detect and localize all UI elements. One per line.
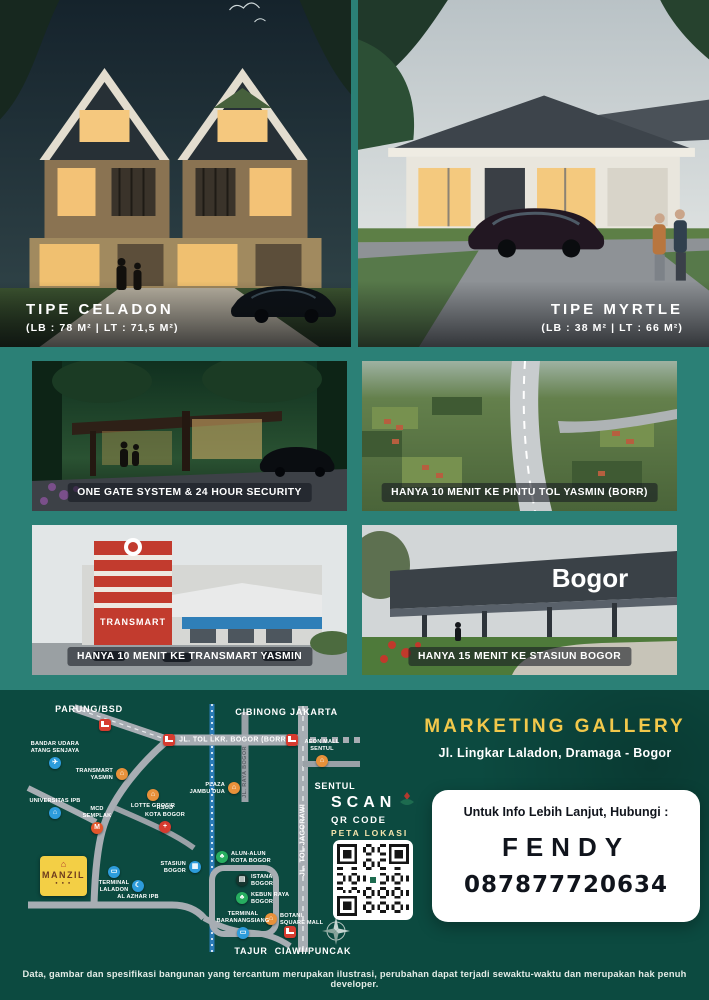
contact-phone: 087877720634 xyxy=(432,872,700,898)
istana-bogor-icon: ▤ xyxy=(236,874,248,886)
plaza-jambu-dua-label: PLAZA JAMBU DUA xyxy=(151,782,225,796)
scan-word: SCAN xyxy=(331,794,396,812)
photo-tol-yasmin: HANYA 10 MENIT KE PINTU TOL YASMIN (BORR… xyxy=(362,361,677,511)
rsud-kota-bogor-icon: + xyxy=(159,821,171,833)
map-area-label: SENTUL xyxy=(315,781,356,791)
plaza-jambu-dua-icon: ⌂ xyxy=(228,782,240,794)
al-azhar-ipb-icon: ☾ xyxy=(132,880,144,892)
stasiun-bogor-label: STASIUN BOGOR xyxy=(112,861,186,875)
istana-bogor-label: ISTANA BOGOR xyxy=(251,874,331,888)
map-area-label: TAJUR xyxy=(234,946,267,956)
rsud-kota-bogor-label: RSUD KOTA BOGOR xyxy=(128,805,202,819)
transmart-yasmin-label: TRANSMART YASMIN xyxy=(39,768,113,782)
scan-peta-lokasi-label: PETA LOKASI xyxy=(331,828,435,838)
tipe-celadon-caption: TIPE CELADON (LB : 78 M² | LT : 71,5 M²) xyxy=(0,281,351,347)
bandar-udara-atang-senjaya-label: BANDAR UDARA ATANG SENJAYA xyxy=(18,741,92,755)
map-road-label: JL. TOL LKR. BOGOR (BORR) xyxy=(179,737,289,744)
tol-caption-strong: PINTU TOL YASMIN xyxy=(503,487,605,498)
tol-caption-post: (BORR) xyxy=(605,487,648,498)
contact-name: FENDY xyxy=(432,832,700,863)
map-area-label: CIAWI/PUNCAK xyxy=(275,946,352,956)
photo-tipe-celadon: TIPE CELADON (LB : 78 M² | LT : 71,5 M²) xyxy=(0,0,351,347)
mcd-semplak-icon: M xyxy=(91,822,103,834)
map-road-label: JL. TOL JAGORAWI xyxy=(300,804,307,876)
feature-grid: ONE GATE SYSTEM & 24 HOUR SECURITY HANYA… xyxy=(32,361,677,675)
manzil-logo-house-icon: ⌂ xyxy=(40,859,87,870)
kebun-raya-bogor-label: KEBUN RAYA BOGOR xyxy=(251,892,331,906)
contact-card: Untuk Info Lebih Lanjut, Hubungi : FENDY… xyxy=(432,790,700,922)
photo-stasiun-bogor: Bogor HANYA 15 MENIT KE STASIUN BOGOR xyxy=(362,525,677,675)
map-area-label: PARUNG/BSD xyxy=(55,704,123,714)
contact-label: Untuk Info Lebih Lanjut, Hubungi : xyxy=(432,790,700,819)
gate-caption: ONE GATE SYSTEM & 24 HOUR SECURITY xyxy=(67,483,312,502)
stasiun-bogor-icon: ▦ xyxy=(189,861,201,873)
gate-caption-strong: ONE GATE SYSTEM & 24 HOUR SECURITY xyxy=(77,487,302,498)
marketing-gallery-address: Jl. Lingkar Laladon, Dramaga - Bogor xyxy=(406,746,704,760)
tol-caption-pre: HANYA 10 MENIT KE xyxy=(391,487,503,498)
scan-block: SCAN QR CODE PETA LOKASI xyxy=(331,792,435,838)
photo-one-gate-system: ONE GATE SYSTEM & 24 HOUR SECURITY xyxy=(32,361,347,511)
station-sign: Bogor xyxy=(552,563,629,593)
qr-code xyxy=(333,840,413,920)
photo-transmart: TRANSMART HANYA 10 MENIT KE TRANSMART YA… xyxy=(32,525,347,675)
tipe-myrtle-caption: TIPE MYRTLE (LB : 38 M² | LT : 66 M²) xyxy=(358,281,709,347)
terminal-baranangsiang-icon: ▭ xyxy=(237,927,249,939)
qr-code-pattern xyxy=(337,844,409,916)
aeon-mall-sentul-icon: ⌂ xyxy=(316,755,328,767)
location-map: ⌂ MANZIL ● ● ● PARUNG/BSDCIBINONGJAKARTA… xyxy=(22,700,367,962)
manzil-logo-text: MANZIL xyxy=(40,870,87,880)
toll-gate-marker-icon xyxy=(99,719,111,731)
alun-alun-kota-bogor-label: ALUN-ALUN KOTA BOGOR xyxy=(231,851,311,865)
project-emblem-icon xyxy=(399,792,415,813)
tipe-celadon-title: TIPE CELADON xyxy=(26,301,325,318)
station-caption: HANYA 15 MENIT KE STASIUN BOGOR xyxy=(408,647,631,666)
transmart-yasmin-icon: ⌂ xyxy=(116,768,128,780)
transmart-caption-strong: TRANSMART YASMIN xyxy=(189,651,302,662)
map-road-label: JL. RAYA BOGOR xyxy=(242,746,248,798)
kebun-raya-bogor-icon: ♣ xyxy=(236,892,248,904)
terminal-laladon-icon: ▭ xyxy=(108,866,120,878)
marketing-gallery-title: MARKETING GALLERY xyxy=(406,716,704,738)
footer-panel: ⌂ MANZIL ● ● ● PARUNG/BSDCIBINONGJAKARTA… xyxy=(0,690,709,1000)
tol-caption: HANYA 10 MENIT KE PINTU TOL YASMIN (BORR… xyxy=(381,483,658,502)
mcd-semplak-label: MCD SEMPLAK xyxy=(60,806,134,820)
aeon-mall-sentul-label: AEON MALL SENTUL xyxy=(285,739,359,753)
alun-alun-kota-bogor-icon: ♣ xyxy=(216,851,228,863)
photo-tipe-myrtle: TIPE MYRTLE (LB : 38 M² | LT : 66 M²) xyxy=(358,0,709,347)
al-azhar-ipb-label: AL AZHAR IPB xyxy=(101,894,175,901)
transmart-sign: TRANSMART xyxy=(100,617,166,627)
toll-gate-marker-icon xyxy=(163,734,175,746)
tipe-myrtle-title: TIPE MYRTLE xyxy=(384,301,683,318)
tipe-myrtle-spec: (LB : 38 M² | LT : 66 M²) xyxy=(384,322,683,334)
station-caption-pre: HANYA 15 MENIT KE xyxy=(418,651,530,662)
map-area-label: CIBINONG xyxy=(235,707,286,717)
station-caption-strong: STASIUN BOGOR xyxy=(530,651,621,662)
tipe-celadon-spec: (LB : 78 M² | LT : 71,5 M²) xyxy=(26,322,325,334)
disclaimer-text: Data, gambar dan spesifikasi bangunan ya… xyxy=(0,969,709,989)
transmart-caption-pre: HANYA 10 MENIT KE xyxy=(77,651,189,662)
universitas-ipb-label: UNIVERSITAS IPB xyxy=(18,798,92,805)
flyer-page: TIPE CELADON (LB : 78 M² | LT : 71,5 M²) xyxy=(0,0,709,1000)
transmart-caption: HANYA 10 MENIT KE TRANSMART YASMIN xyxy=(67,647,312,666)
terminal-baranangsiang-label: TERMINAL BARANANGSIANG xyxy=(206,911,280,925)
toll-gate-marker-icon xyxy=(284,926,296,938)
hero-row: TIPE CELADON (LB : 78 M² | LT : 71,5 M²) xyxy=(0,0,709,347)
scan-qr-code-label: QR CODE xyxy=(331,815,435,826)
map-area-label: JAKARTA xyxy=(290,707,338,717)
